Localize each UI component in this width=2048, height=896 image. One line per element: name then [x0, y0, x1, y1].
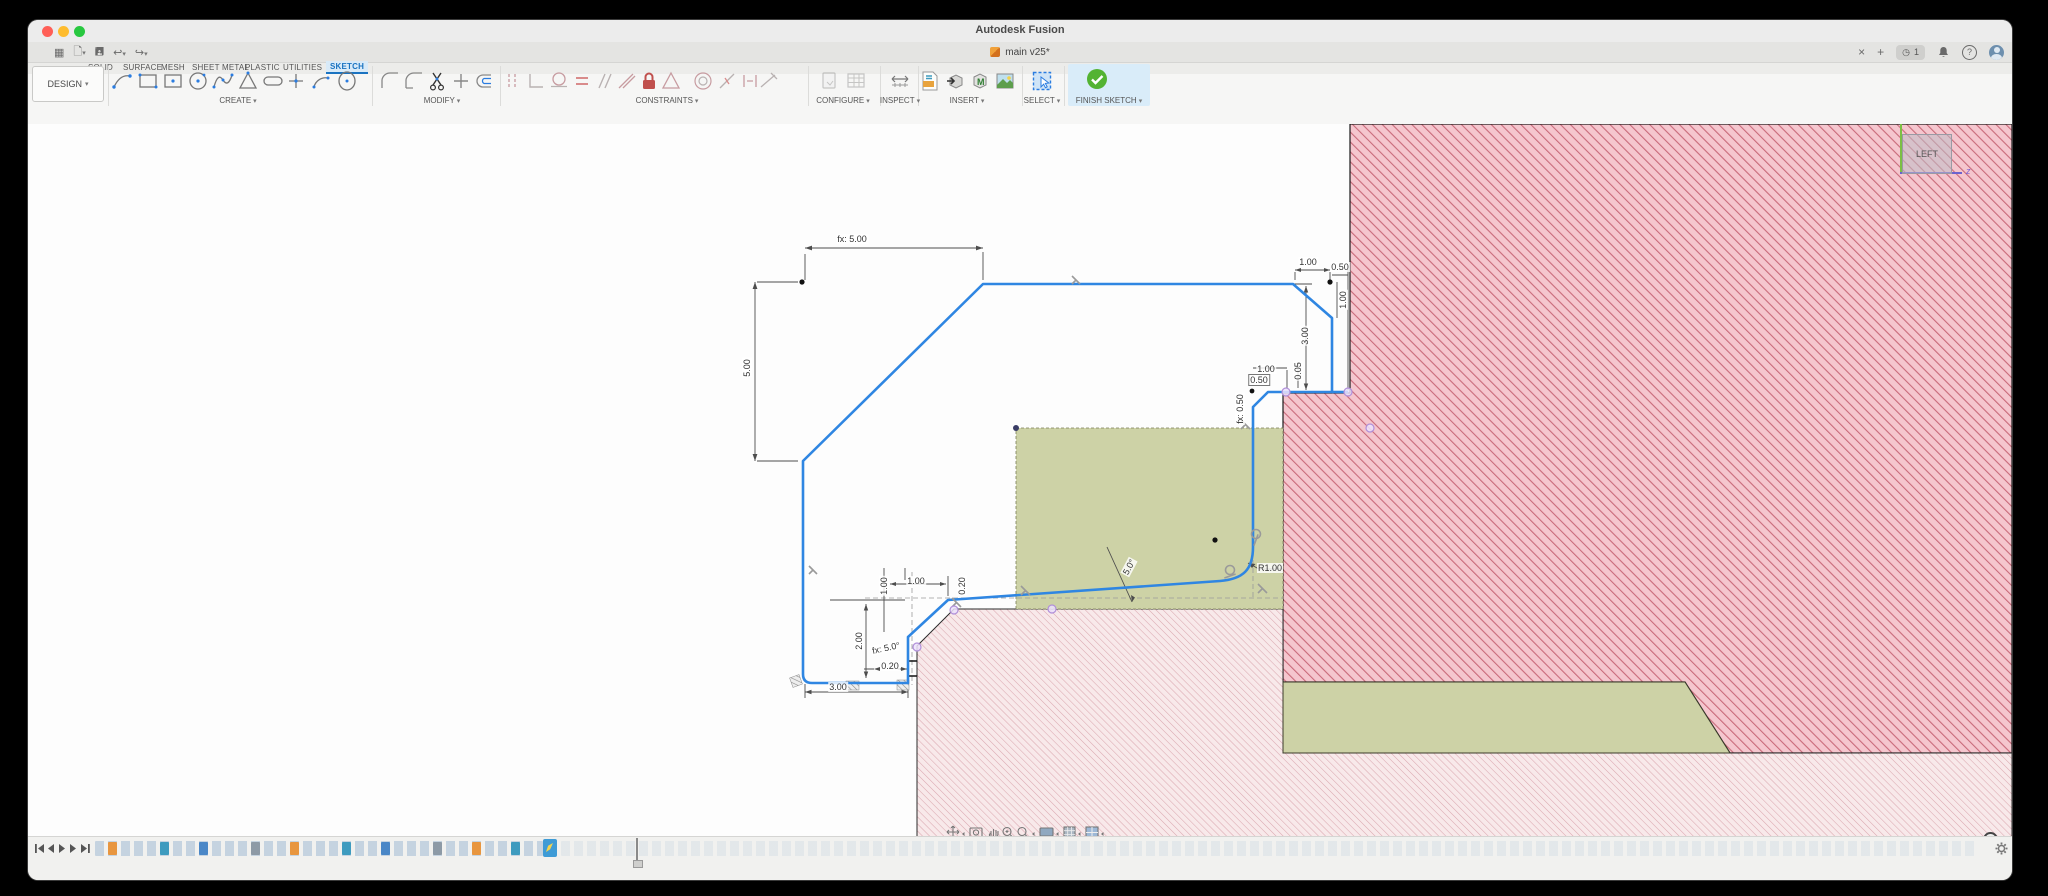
window-title: Autodesk Fusion [28, 24, 2012, 36]
document-tab[interactable]: main v25* [28, 42, 2012, 62]
svg-text:M: M [977, 77, 985, 87]
constraint-parallel-icon[interactable] [593, 70, 615, 92]
insert-svg-icon[interactable] [919, 70, 941, 92]
dimension-label-bl-v020[interactable]: 0.20 [957, 576, 967, 596]
dimension-label-mr-100[interactable]: 1.00 [1256, 364, 1276, 374]
group-label-create[interactable]: CREATE▾ [219, 96, 256, 105]
profile-region-main[interactable] [1016, 428, 1283, 609]
configure-table-icon[interactable] [845, 70, 867, 92]
timeline-feature-icon[interactable] [251, 842, 260, 855]
close-tab-icon[interactable]: × [1858, 45, 1865, 59]
configure-configuration-icon[interactable] [819, 70, 841, 92]
viewcube[interactable]: LEFT [1902, 134, 1952, 174]
environment-label: DESIGN [47, 79, 82, 89]
insert-derive-icon[interactable] [944, 70, 966, 92]
dimension-label-tr-v300[interactable]: 3.00 [1300, 326, 1310, 346]
group-divider [108, 66, 109, 106]
timeline-feature-icon[interactable] [160, 842, 169, 855]
help-icon[interactable]: ? [1962, 45, 1977, 60]
group-label-finish-sketch[interactable]: FINISH SKETCH▾ [1076, 96, 1142, 105]
constraint-symmetry-icon[interactable] [660, 70, 682, 92]
dimension-label-tr-100[interactable]: 1.00 [1298, 257, 1318, 267]
viewcube-face-label: LEFT [1916, 149, 1938, 159]
edge-ticks [908, 661, 917, 676]
timeline-feature-icon[interactable] [108, 842, 117, 855]
select-tool-icon[interactable] [1031, 70, 1053, 92]
modify-extend-icon[interactable] [450, 70, 472, 92]
body-section-top-right[interactable] [1283, 124, 2012, 753]
create-line-icon[interactable] [111, 70, 133, 92]
fixed-badge [790, 675, 803, 688]
dimension-label-tr-v100[interactable]: 1.00 [1338, 290, 1348, 310]
group-divider [372, 66, 373, 106]
timeline-feature-icon[interactable] [342, 842, 351, 855]
create-center-rectangle-icon[interactable] [162, 70, 184, 92]
constraint-perpendicular-icon[interactable] [525, 70, 547, 92]
dimension-label-top-width[interactable]: fx: 5.00 [836, 234, 868, 244]
go-to-end-button[interactable] [81, 844, 90, 853]
modify-chamfer-icon[interactable] [403, 70, 425, 92]
user-avatar[interactable] [1989, 45, 2004, 60]
constraint-curvature-icon[interactable] [757, 70, 779, 92]
insert-canvas-image-icon[interactable] [994, 70, 1016, 92]
viewcube-axis-label: z [1966, 166, 1971, 176]
create-rectangle-icon[interactable] [137, 70, 159, 92]
step-back-button[interactable] [48, 844, 54, 853]
create-spline-icon[interactable] [212, 70, 234, 92]
group-label-constraints[interactable]: CONSTRAINTS▾ [636, 96, 699, 105]
group-label-modify[interactable]: MODIFY▾ [424, 96, 461, 105]
dimension-label-radius[interactable]: R1.00 [1257, 563, 1283, 573]
create-slot-icon[interactable] [262, 70, 284, 92]
dimension-label-tr-005[interactable]: 0.05 [1293, 361, 1303, 381]
job-count: 1 [1914, 47, 1919, 57]
dimension-label-tr-050[interactable]: 0.50 [1330, 262, 1350, 272]
dimension-label-left-height[interactable]: 5.00 [742, 358, 752, 378]
timeline-rolled-features[interactable] [561, 841, 1978, 856]
group-divider [1064, 66, 1065, 106]
constraint-concentric-icon[interactable] [692, 70, 714, 92]
dimension-label-bottom-300[interactable]: 3.00 [828, 682, 848, 692]
modify-fillet-icon[interactable] [379, 70, 401, 92]
timeline-feature-icon[interactable] [381, 842, 390, 855]
clock-icon: ◷ [1902, 47, 1910, 58]
timeline-feature-icon[interactable] [199, 842, 208, 855]
screen: Autodesk Fusion ▦ 🗋▾ 🖪 ↩▾ ↪▾ main v25* ×… [0, 0, 2048, 896]
timeline-active-sketch-icon[interactable] [543, 839, 557, 857]
document-icon [990, 47, 1000, 57]
timeline-feature-icon[interactable] [511, 842, 520, 855]
tab-controls: × + ◷ 1 ? [1858, 42, 2004, 62]
timeline-settings-gear-icon[interactable] [1994, 841, 2009, 856]
create-point-icon[interactable] [285, 70, 307, 92]
group-label-inspect[interactable]: INSPECT▾ [880, 96, 920, 105]
timeline-feature-icon[interactable] [472, 842, 481, 855]
constraint-collinear-icon[interactable] [615, 70, 637, 92]
constraint-tangent-icon[interactable] [548, 70, 570, 92]
titlebar: Autodesk Fusion [28, 20, 2012, 43]
group-divider [808, 66, 809, 106]
finish-sketch-check-icon[interactable] [1086, 68, 1108, 90]
step-forward-button[interactable] [70, 844, 76, 853]
document-tab-label: main v25* [1005, 47, 1049, 58]
insert-mcmaster-icon[interactable]: M [969, 70, 991, 92]
sketch-canvas[interactable]: fx: 5.00 5.00 1.00 0.50 1.00 3.00 0.05 1… [28, 124, 2012, 852]
inspect-measure-icon[interactable] [889, 70, 911, 92]
sketch-graphics[interactable] [28, 124, 2012, 852]
dimension-label-bl-v100[interactable]: 1.00 [879, 576, 889, 596]
dimension-label-mr-050[interactable]: 0.50 [1248, 374, 1270, 386]
timeline [28, 836, 2012, 880]
constraint-fix-lock-icon[interactable] [638, 70, 660, 92]
go-to-start-button[interactable] [35, 844, 44, 853]
timeline-playback [35, 842, 91, 855]
constraint-coincident-icon[interactable] [716, 70, 738, 92]
job-status-badge[interactable]: ◷ 1 [1896, 45, 1925, 60]
dimension-label-bl-020[interactable]: 0.20 [880, 661, 900, 671]
dimension-label-bl-200[interactable]: 2.00 [854, 631, 864, 651]
modify-offset-icon[interactable] [473, 70, 495, 92]
timeline-feature-icon[interactable] [433, 842, 442, 855]
environment-selector-button[interactable]: DESIGN ▾ [32, 66, 104, 102]
group-label-insert[interactable]: INSERT▾ [950, 96, 985, 105]
create-polygon-icon[interactable] [237, 70, 259, 92]
fusion-window: Autodesk Fusion ▦ 🗋▾ 🖪 ↩▾ ↪▾ main v25* ×… [28, 20, 2012, 880]
dimension-label-bl-h100[interactable]: 1.00 [906, 576, 926, 586]
dimension-label-mr-fx050[interactable]: fx: 0.50 [1235, 393, 1245, 425]
timeline-feature-icon[interactable] [290, 842, 299, 855]
tab-strip: ▦ 🗋▾ 🖪 ↩▾ ↪▾ main v25* × + ◷ 1 ? [28, 42, 2012, 63]
notification-bell-icon[interactable] [1937, 46, 1950, 59]
constraint-vertical-icon[interactable] [501, 70, 523, 92]
modify-trim-icon[interactable] [427, 70, 449, 92]
create-ellipse-icon[interactable] [336, 70, 358, 92]
group-label-select[interactable]: SELECT▾ [1024, 96, 1061, 105]
play-button[interactable] [59, 844, 65, 853]
create-arc-icon[interactable] [310, 70, 332, 92]
ribbon: DESIGN ▾ [28, 74, 2012, 125]
group-label-configure[interactable]: CONFIGURE▾ [816, 96, 870, 105]
new-tab-icon[interactable]: + [1877, 45, 1884, 59]
timeline-position-marker[interactable] [636, 838, 638, 862]
constraint-equal-icon[interactable] [571, 70, 593, 92]
profile-region-strip[interactable] [1283, 682, 1730, 753]
create-circle-icon[interactable] [187, 70, 209, 92]
